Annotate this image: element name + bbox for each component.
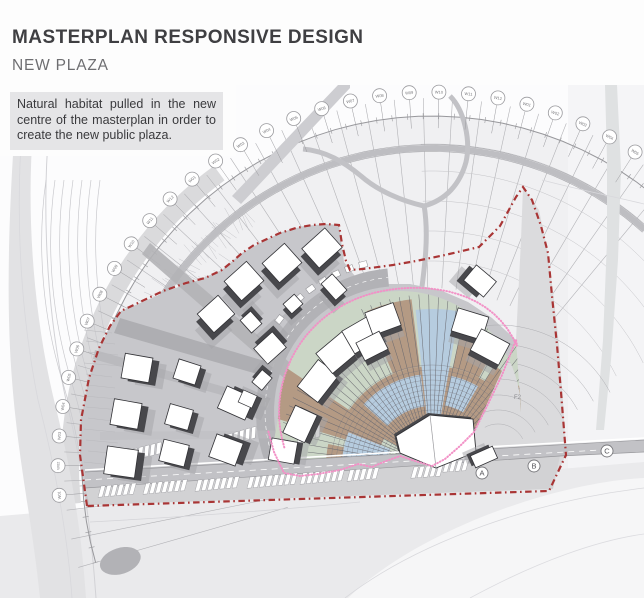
svg-text:C: C [604, 447, 610, 456]
svg-text:W02: W02 [56, 461, 61, 470]
svg-text:W09: W09 [405, 90, 414, 96]
svg-text:W10: W10 [435, 90, 444, 95]
svg-text:F2: F2 [514, 395, 522, 401]
svg-text:A: A [479, 469, 484, 478]
svg-text:B: B [531, 462, 536, 471]
svg-text:W11: W11 [464, 91, 473, 97]
svg-text:W01: W01 [56, 490, 62, 499]
svg-text:W03: W03 [56, 431, 62, 440]
